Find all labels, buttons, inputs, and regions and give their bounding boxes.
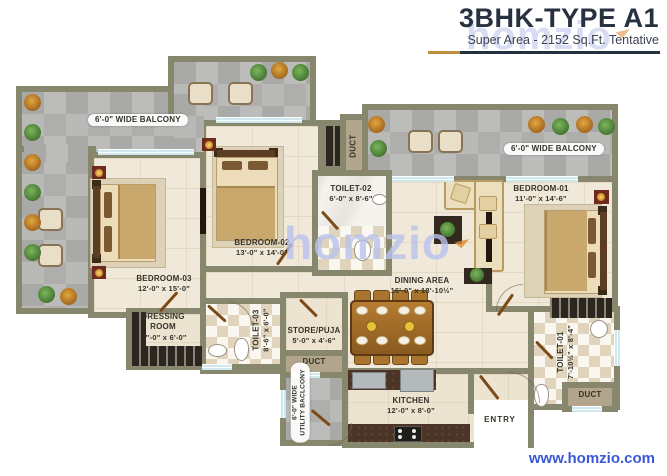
bedroom-02-label: BEDROOM-0213'-0" x 14'-0" [222, 238, 302, 258]
plate [356, 306, 368, 315]
plant-icon [250, 64, 267, 81]
plant-icon [528, 116, 545, 133]
cooktop-hob [394, 426, 422, 442]
toilet-02-checker-floor [318, 226, 386, 270]
pillow [248, 161, 268, 170]
window [202, 364, 232, 370]
plan-header: 3BHK-TYPE A1 Super Area - 2152 Sq.Ft. Te… [459, 4, 659, 47]
cushion [479, 196, 497, 211]
serving-dish [366, 321, 377, 332]
toilet-wc [354, 240, 371, 261]
window [98, 149, 194, 155]
plant-icon [24, 214, 41, 231]
divider-gold-segment [428, 51, 460, 54]
wall-segment [468, 368, 474, 414]
chair-icon [38, 244, 63, 267]
pillow [588, 252, 596, 278]
pillow [104, 192, 112, 218]
dining-area-label: DINING AREA16'-0" x 18'-10½" [382, 276, 462, 296]
bed-headboard [600, 212, 607, 290]
chair-icon [188, 82, 213, 105]
duct-top-label: DUCT [334, 128, 374, 164]
plate [414, 306, 426, 315]
blanket [118, 185, 155, 259]
wardrobe-unit [130, 346, 202, 366]
nightstand-lamp [92, 266, 106, 279]
plant-icon [576, 116, 593, 133]
chair-icon [438, 130, 463, 153]
plant-icon [24, 94, 41, 111]
chair-icon [228, 82, 253, 105]
plant-icon [598, 118, 615, 135]
plant-icon [60, 288, 77, 305]
chair-icon [38, 208, 63, 231]
kitchen-sink [352, 372, 386, 389]
plant-icon [24, 184, 41, 201]
cushion [479, 224, 497, 239]
entry-label: ENTRY [478, 415, 522, 425]
balcony-left-label: 6'-0" WIDE BALCONY [88, 114, 188, 126]
plate [398, 306, 410, 315]
plate [398, 336, 410, 345]
plant-icon [292, 64, 309, 81]
nightstand-lamp [594, 190, 609, 204]
pillow [222, 161, 242, 170]
kitchen-label: KITCHEN12'-0" x 8'-0" [371, 396, 451, 416]
header-divider [428, 51, 660, 54]
page-subtitle: Super Area - 2152 Sq.Ft. Tentative [459, 33, 659, 47]
window [614, 330, 620, 366]
window [506, 176, 578, 182]
toilet-01-label: TOILET-017'-10½" x 8'-4" [526, 334, 606, 370]
divider-navy-segment [460, 51, 660, 54]
chair-icon [408, 130, 433, 153]
page-title: 3BHK-TYPE A1 [459, 4, 659, 32]
bed-headboard [217, 150, 275, 157]
blanket [545, 211, 587, 291]
bed-headboard [93, 186, 100, 258]
plant-icon [440, 222, 455, 237]
toilet-03-label: TOILET-038'-6" x 6'-0" [222, 312, 302, 348]
plant-icon [38, 286, 55, 303]
serving-dish [404, 321, 415, 332]
dressing-room-label: DRESSING ROOM7'-0" x 6'-0" [134, 312, 196, 343]
plant-icon [24, 124, 41, 141]
wardrobe-unit [550, 298, 612, 318]
tv-unit [200, 188, 206, 234]
window [392, 176, 454, 182]
plate [376, 336, 388, 345]
plate [356, 336, 368, 345]
plate [414, 336, 426, 345]
duct-bottom-label: DUCT [568, 390, 612, 400]
toilet-02-label: TOILET-026'-0" x 8'-6" [312, 184, 390, 204]
nightstand-lamp [202, 138, 216, 151]
balcony-right-label: 6'-0" WIDE BALCONY [504, 143, 604, 155]
window [572, 406, 602, 412]
pillow [588, 218, 596, 244]
blanket [217, 186, 275, 240]
plant-icon [24, 244, 41, 261]
bedroom-01-label: BEDROOM-0111'-0" x 14'-6" [501, 184, 581, 204]
nightstand-lamp [92, 166, 106, 179]
floor-plan-canvas: 3BHK-TYPE A1 Super Area - 2152 Sq.Ft. Te… [0, 0, 667, 476]
utility-balcony-label: 6'-0" WIDEUTILITY BACLCONY [256, 384, 344, 420]
bedroom-03-label: BEDROOM-0312'-0" x 15'-0" [124, 274, 204, 294]
plate [376, 306, 388, 315]
window [216, 117, 302, 123]
pillow [104, 226, 112, 252]
plant-icon [24, 154, 41, 171]
plant-icon [470, 268, 484, 282]
website-link[interactable]: www.homzio.com [529, 450, 655, 467]
plant-icon [552, 118, 569, 135]
plant-icon [271, 62, 288, 79]
refrigerator [400, 369, 434, 392]
